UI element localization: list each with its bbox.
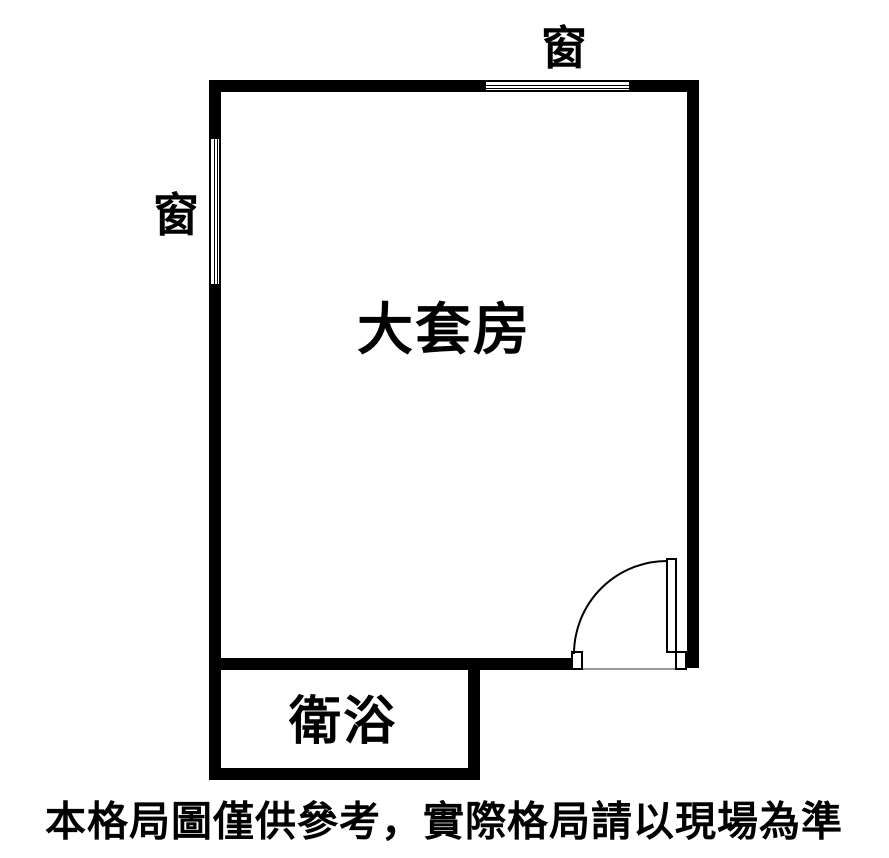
wall-bathroom-bottom	[209, 768, 480, 780]
door-jamb-left	[571, 651, 583, 670]
wall-right	[687, 80, 699, 668]
window-left-label: 窗	[153, 192, 199, 238]
door-threshold-line	[582, 668, 687, 670]
wall-bottom-main	[209, 658, 572, 670]
window-left	[209, 137, 221, 286]
wall-bathroom-right	[468, 658, 480, 780]
floor-plan: 窗 窗 大套房 衛浴 本格局圖僅供參考，實際格局請以現場為準	[0, 0, 889, 858]
window-top	[484, 80, 631, 92]
window-pane-line	[486, 88, 629, 90]
window-top-label: 窗	[541, 25, 587, 71]
bathroom-label: 衛浴	[289, 696, 397, 748]
main-room-label: 大套房	[357, 302, 531, 358]
door-leaf	[666, 558, 677, 653]
door-jamb-right	[675, 651, 687, 670]
disclaimer-text: 本格局圖僅供參考，實際格局請以現場為準	[45, 802, 843, 843]
window-pane-line	[214, 139, 216, 284]
window-pane-line	[486, 85, 629, 87]
window-pane-line	[217, 139, 219, 284]
door-swing-arc	[0, 0, 889, 858]
